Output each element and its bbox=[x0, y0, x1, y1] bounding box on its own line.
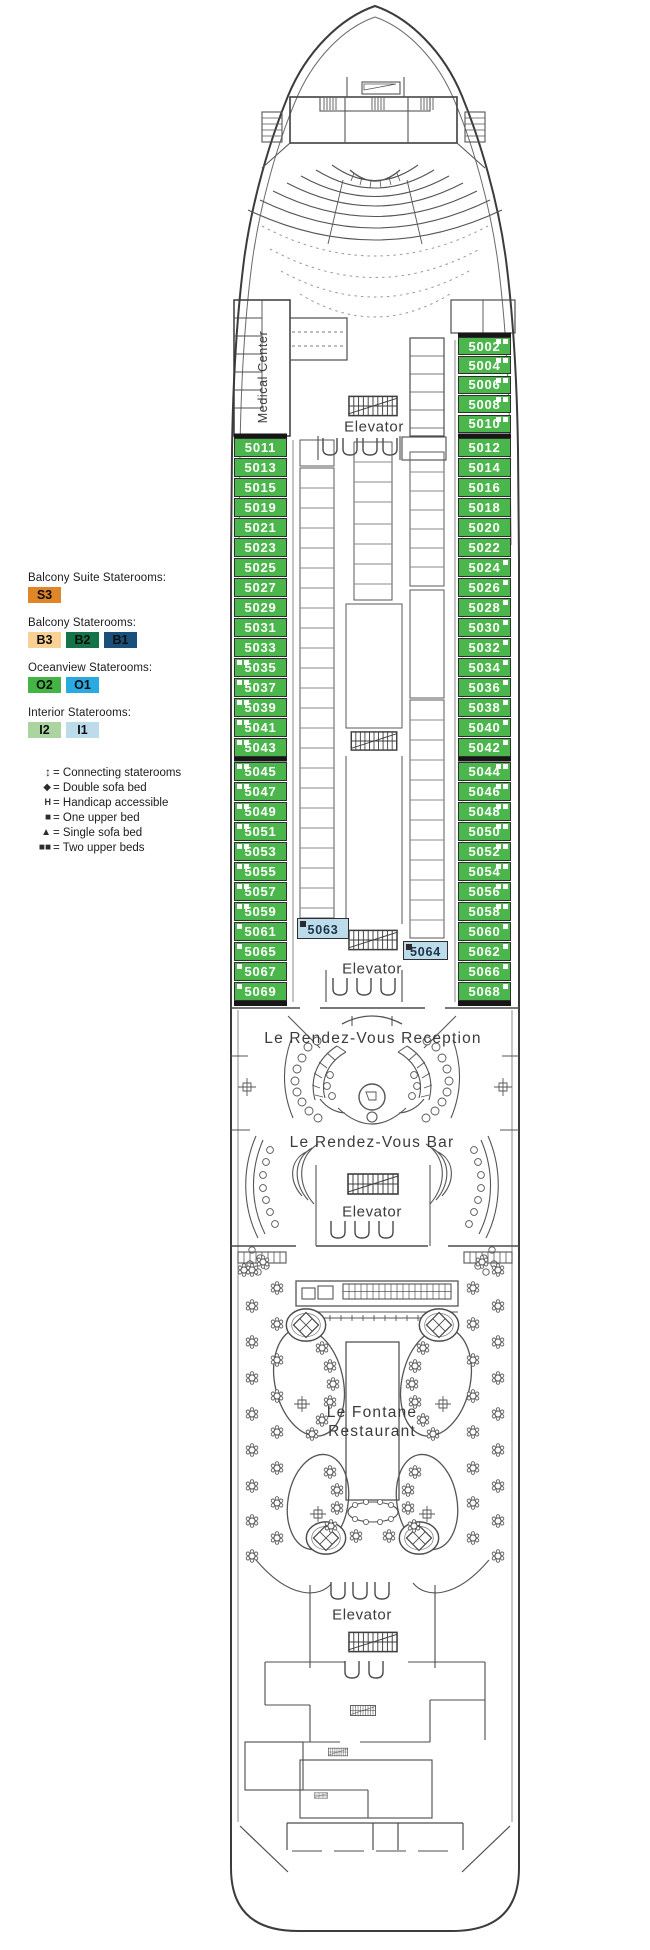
dining-table-icon bbox=[316, 1342, 328, 1355]
theater-area bbox=[248, 77, 502, 317]
dining-table-icon bbox=[246, 1336, 258, 1349]
upper-bed-icon bbox=[496, 784, 501, 789]
dining-table-icon bbox=[246, 1550, 258, 1563]
restaurant-label-line1: Le Fontane bbox=[327, 1404, 417, 1422]
dining-table-icon bbox=[492, 1515, 504, 1528]
legend-swatch-S3: S3 bbox=[28, 587, 61, 603]
single-sofa-bed-icon: ▲ bbox=[28, 825, 53, 840]
dining-table-icon bbox=[383, 1530, 395, 1543]
stateroom-5068[interactable]: 5068 bbox=[458, 982, 511, 1001]
restaurant-label-line2: Restaurant bbox=[328, 1423, 416, 1441]
dining-table-icon bbox=[246, 1480, 258, 1493]
stateroom-5045[interactable]: 5045 bbox=[234, 762, 287, 781]
stateroom-5016[interactable]: 5016 bbox=[458, 478, 511, 497]
legend-symbol-label: = Single sofa bed bbox=[53, 827, 142, 839]
upper-bed-icon bbox=[244, 844, 249, 849]
upper-bed-icon bbox=[237, 964, 242, 969]
upper-bed-icon bbox=[503, 964, 508, 969]
upper-bed-icon bbox=[503, 864, 508, 869]
upper-bed-icon bbox=[503, 924, 508, 929]
stateroom-5056[interactable]: 5056 bbox=[458, 882, 511, 901]
upper-bed-icon bbox=[237, 784, 242, 789]
legend: Balcony Suite Staterooms:S3Balcony State… bbox=[28, 572, 228, 855]
reception-area bbox=[231, 1008, 519, 1130]
dining-table-icon bbox=[271, 1390, 283, 1403]
legend-symbol-row-2: H= Handicap accessible bbox=[28, 795, 228, 810]
stateroom-5034[interactable]: 5034 bbox=[458, 658, 511, 677]
medical-center-label: Medical Center bbox=[256, 331, 270, 423]
stateroom-5035[interactable]: 5035 bbox=[234, 658, 287, 677]
upper-bed-icon bbox=[244, 764, 249, 769]
upper-bed-icon bbox=[406, 944, 412, 950]
dining-table-icon bbox=[467, 1354, 479, 1367]
dining-table-icon bbox=[271, 1497, 283, 1510]
stateroom-5002[interactable]: 5002 bbox=[458, 337, 511, 355]
legend-swatch-B3: B3 bbox=[28, 632, 61, 648]
legend-category-label-oceanview: Oceanview Staterooms: bbox=[28, 662, 228, 674]
dining-table-icon bbox=[271, 1462, 283, 1475]
dining-table-icon bbox=[246, 1408, 258, 1421]
legend-swatch-I1: I1 bbox=[66, 722, 99, 738]
elevator-label-mid: Elevator bbox=[342, 961, 402, 978]
dining-table-icon bbox=[467, 1390, 479, 1403]
stateroom-5024[interactable]: 5024 bbox=[458, 558, 511, 577]
stateroom-5029[interactable]: 5029 bbox=[234, 598, 287, 617]
legend-swatch-O1: O1 bbox=[66, 677, 99, 693]
upper-bed-icon bbox=[237, 824, 242, 829]
dining-table-icon bbox=[271, 1426, 283, 1439]
upper-bed-icon bbox=[237, 700, 242, 705]
dining-table-icon bbox=[246, 1300, 258, 1313]
dining-table-icon bbox=[324, 1466, 336, 1479]
upper-bed-icon bbox=[237, 804, 242, 809]
stateroom-5051[interactable]: 5051 bbox=[234, 822, 287, 841]
upper-bed-icon bbox=[237, 764, 242, 769]
dining-table-icon bbox=[409, 1360, 421, 1373]
upper-bed-icon bbox=[237, 944, 242, 949]
upper-bed-icon bbox=[244, 680, 249, 685]
upper-bed-icon bbox=[244, 864, 249, 869]
upper-bed-icon bbox=[503, 339, 508, 344]
dining-table-icon bbox=[406, 1378, 418, 1391]
upper-bed-icon bbox=[237, 660, 242, 665]
dining-table-icon bbox=[417, 1342, 429, 1355]
stateroom-5014[interactable]: 5014 bbox=[458, 458, 511, 477]
upper-bed-icon bbox=[244, 700, 249, 705]
stateroom-5004[interactable]: 5004 bbox=[458, 356, 511, 374]
dining-table-icon bbox=[331, 1502, 343, 1515]
stateroom-5066[interactable]: 5066 bbox=[458, 962, 511, 981]
dining-table-icon bbox=[402, 1484, 414, 1497]
upper-bed-icon bbox=[244, 720, 249, 725]
stateroom-5026[interactable]: 5026 bbox=[458, 578, 511, 597]
dining-table-icon bbox=[467, 1497, 479, 1510]
dining-table-icon bbox=[409, 1466, 421, 1479]
stateroom-5006[interactable]: 5006 bbox=[458, 376, 511, 394]
dining-table-icon bbox=[492, 1264, 504, 1277]
handicap-accessible-icon: H bbox=[28, 795, 53, 810]
dining-table-icon bbox=[467, 1282, 479, 1295]
stateroom-5015[interactable]: 5015 bbox=[234, 478, 287, 497]
stateroom-5019[interactable]: 5019 bbox=[234, 498, 287, 517]
dining-table-icon bbox=[492, 1480, 504, 1493]
stateroom-5012[interactable]: 5012 bbox=[458, 438, 511, 457]
stateroom-5046[interactable]: 5046 bbox=[458, 782, 511, 801]
upper-bed-icon bbox=[244, 740, 249, 745]
upper-bed-icon bbox=[503, 804, 508, 809]
dining-table-icon bbox=[271, 1318, 283, 1331]
legend-symbol-label: = One upper bed bbox=[53, 812, 140, 824]
stateroom-5047[interactable]: 5047 bbox=[234, 782, 287, 801]
stateroom-5040[interactable]: 5040 bbox=[458, 718, 511, 737]
stateroom-5063[interactable]: 5063 bbox=[297, 918, 349, 939]
upper-bed-icon bbox=[503, 944, 508, 949]
stateroom-5023[interactable]: 5023 bbox=[234, 538, 287, 557]
stateroom-5042[interactable]: 5042 bbox=[458, 738, 511, 757]
dining-table-icon bbox=[467, 1462, 479, 1475]
upper-bed-icon bbox=[237, 680, 242, 685]
upper-bed-icon bbox=[496, 339, 501, 344]
upper-bed-icon bbox=[503, 600, 508, 605]
legend-swatch-B2: B2 bbox=[66, 632, 99, 648]
stateroom-5057[interactable]: 5057 bbox=[234, 882, 287, 901]
upper-bed-icon bbox=[503, 660, 508, 665]
dining-table-icon bbox=[467, 1532, 479, 1545]
bar-label: Le Rendez-Vous Bar bbox=[290, 1134, 455, 1152]
upper-bed-icon bbox=[496, 884, 501, 889]
upper-bed-icon bbox=[503, 580, 508, 585]
upper-bed-icon bbox=[237, 844, 242, 849]
upper-bed-icon bbox=[503, 740, 508, 745]
upper-bed-icon bbox=[503, 417, 508, 422]
legend-symbol-label: = Connecting staterooms bbox=[53, 767, 181, 779]
stateroom-5037[interactable]: 5037 bbox=[234, 678, 287, 697]
legend-symbols: ↕= Connecting staterooms◆= Double sofa b… bbox=[28, 765, 228, 855]
upper-bed-icon bbox=[237, 924, 242, 929]
upper-bed-icon bbox=[237, 984, 242, 989]
upper-bed-icon bbox=[496, 417, 501, 422]
stateroom-5058[interactable]: 5058 bbox=[458, 902, 511, 921]
stateroom-5032[interactable]: 5032 bbox=[458, 638, 511, 657]
upper-bed-icon bbox=[503, 784, 508, 789]
upper-bed-icon bbox=[237, 720, 242, 725]
upper-bed-icon bbox=[496, 864, 501, 869]
upper-bed-icon bbox=[503, 397, 508, 402]
upper-bed-icon bbox=[237, 904, 242, 909]
stateroom-5011[interactable]: 5011 bbox=[234, 438, 287, 457]
stateroom-5033[interactable]: 5033 bbox=[234, 638, 287, 657]
upper-bed-icon bbox=[503, 904, 508, 909]
dining-table-icon bbox=[331, 1484, 343, 1497]
upper-bed-icon bbox=[503, 620, 508, 625]
dining-table-icon bbox=[246, 1444, 258, 1457]
upper-bed-icon bbox=[503, 680, 508, 685]
upper-bed-icon bbox=[503, 824, 508, 829]
stateroom-5059[interactable]: 5059 bbox=[234, 902, 287, 921]
stateroom-5044[interactable]: 5044 bbox=[458, 762, 511, 781]
upper-bed-icon bbox=[503, 378, 508, 383]
upper-bed-icon bbox=[496, 397, 501, 402]
upper-bed-icon bbox=[496, 804, 501, 809]
upper-bed-icon bbox=[244, 784, 249, 789]
double-sofa-bed-icon: ◆ bbox=[28, 780, 53, 795]
legend-symbol-row-4: ▲= Single sofa bed bbox=[28, 825, 228, 840]
legend-swatch-I2: I2 bbox=[28, 722, 61, 738]
upper-bed-icon bbox=[503, 844, 508, 849]
upper-bed-icon bbox=[496, 904, 501, 909]
upper-bed-icon bbox=[496, 764, 501, 769]
upper-bed-icon bbox=[496, 358, 501, 363]
legend-categories: Balcony Suite Staterooms:S3Balcony State… bbox=[28, 572, 228, 738]
stateroom-5013[interactable]: 5013 bbox=[234, 458, 287, 477]
elevator-label-aft: Elevator bbox=[332, 1607, 392, 1624]
dining-table-icon bbox=[492, 1408, 504, 1421]
upper-bed-icon bbox=[300, 921, 306, 927]
legend-symbol-label: = Two upper beds bbox=[53, 842, 145, 854]
elevator-label-lobby: Elevator bbox=[342, 1204, 402, 1221]
legend-swatch-O2: O2 bbox=[28, 677, 61, 693]
dining-table-icon bbox=[492, 1372, 504, 1385]
legend-symbol-row-1: ◆= Double sofa bed bbox=[28, 780, 228, 795]
upper-bed-icon bbox=[496, 378, 501, 383]
deck-plan-drawing bbox=[0, 0, 650, 1950]
stateroom-5053[interactable]: 5053 bbox=[234, 842, 287, 861]
stern-platform bbox=[240, 1823, 510, 1872]
stateroom-5021[interactable]: 5021 bbox=[234, 518, 287, 537]
stateroom-5052[interactable]: 5052 bbox=[458, 842, 511, 861]
reception-label: Le Rendez-Vous Reception bbox=[264, 1030, 482, 1048]
dining-table-icon bbox=[492, 1550, 504, 1563]
stateroom-5027[interactable]: 5027 bbox=[234, 578, 287, 597]
stateroom-5069[interactable]: 5069 bbox=[234, 982, 287, 1001]
stateroom-5010[interactable]: 5010 bbox=[458, 415, 511, 433]
legend-swatch-B1: B1 bbox=[104, 632, 137, 648]
dining-table-icon bbox=[467, 1426, 479, 1439]
dining-table-icon bbox=[246, 1372, 258, 1385]
elevator-label-forward: Elevator bbox=[344, 419, 404, 436]
upper-bed-icon bbox=[503, 984, 508, 989]
stateroom-5055[interactable]: 5055 bbox=[234, 862, 287, 881]
connecting-staterooms-icon: ↕ bbox=[28, 765, 53, 780]
stateroom-5043[interactable]: 5043 bbox=[234, 738, 287, 757]
upper-bed-icon bbox=[503, 700, 508, 705]
legend-symbol-label: = Handicap accessible bbox=[53, 797, 168, 809]
stateroom-5065[interactable]: 5065 bbox=[234, 942, 287, 961]
upper-bed-icon bbox=[503, 358, 508, 363]
dining-table-icon bbox=[417, 1414, 429, 1427]
dining-table-icon bbox=[492, 1336, 504, 1349]
stateroom-5064[interactable]: 5064 bbox=[403, 941, 448, 961]
dining-table-icon bbox=[492, 1444, 504, 1457]
dining-table-icon bbox=[402, 1502, 414, 1515]
upper-bed-icon bbox=[244, 904, 249, 909]
legend-symbol-label: = Double sofa bed bbox=[53, 782, 147, 794]
two-upper-beds-icon: ■■ bbox=[28, 840, 53, 855]
legend-symbol-row-3: ■= One upper bed bbox=[28, 810, 228, 825]
upper-bed-icon bbox=[237, 884, 242, 889]
upper-bed-icon bbox=[244, 884, 249, 889]
stateroom-5049[interactable]: 5049 bbox=[234, 802, 287, 821]
stateroom-5050[interactable]: 5050 bbox=[458, 822, 511, 841]
one-upper-bed-icon: ■ bbox=[28, 810, 53, 825]
upper-bed-icon bbox=[237, 740, 242, 745]
stateroom-5067[interactable]: 5067 bbox=[234, 962, 287, 981]
legend-symbol-row-0: ↕= Connecting staterooms bbox=[28, 765, 228, 780]
stateroom-5054[interactable]: 5054 bbox=[458, 862, 511, 881]
upper-bed-icon bbox=[496, 844, 501, 849]
upper-bed-icon bbox=[244, 660, 249, 665]
upper-bed-icon bbox=[496, 824, 501, 829]
legend-swatch-row-balcony-suite: S3 bbox=[28, 587, 228, 603]
stateroom-5041[interactable]: 5041 bbox=[234, 718, 287, 737]
stateroom-5031[interactable]: 5031 bbox=[234, 618, 287, 637]
upper-bed-icon bbox=[503, 640, 508, 645]
upper-bed-icon bbox=[244, 824, 249, 829]
dining-table-icon bbox=[271, 1354, 283, 1367]
stateroom-5025[interactable]: 5025 bbox=[234, 558, 287, 577]
dining-table-icon bbox=[257, 1256, 269, 1269]
stateroom-5039[interactable]: 5039 bbox=[234, 698, 287, 717]
legend-category-label-balcony: Balcony Staterooms: bbox=[28, 617, 228, 629]
dining-table-icon bbox=[238, 1264, 250, 1277]
aft-service-area bbox=[245, 1662, 485, 1818]
upper-bed-icon bbox=[503, 764, 508, 769]
upper-bed-icon bbox=[244, 804, 249, 809]
dining-table-icon bbox=[324, 1360, 336, 1373]
stateroom-5048[interactable]: 5048 bbox=[458, 802, 511, 821]
dining-table-icon bbox=[492, 1300, 504, 1313]
upper-bed-icon bbox=[503, 720, 508, 725]
upper-bed-icon bbox=[503, 560, 508, 565]
deck-plan-page: { "labels": { "medical_center": "Medical… bbox=[0, 0, 650, 1950]
legend-swatch-row-balcony: B3B2B1 bbox=[28, 632, 228, 648]
stateroom-5036[interactable]: 5036 bbox=[458, 678, 511, 697]
stateroom-5062[interactable]: 5062 bbox=[458, 942, 511, 961]
legend-swatch-row-interior: I2I1 bbox=[28, 722, 228, 738]
legend-category-label-balcony-suite: Balcony Suite Staterooms: bbox=[28, 572, 228, 584]
dining-table-icon bbox=[327, 1378, 339, 1391]
dining-table-icon bbox=[467, 1318, 479, 1331]
stateroom-5020[interactable]: 5020 bbox=[458, 518, 511, 537]
stateroom-5030[interactable]: 5030 bbox=[458, 618, 511, 637]
upper-bed-icon bbox=[503, 884, 508, 889]
stateroom-5061[interactable]: 5061 bbox=[234, 922, 287, 941]
stateroom-5028[interactable]: 5028 bbox=[458, 598, 511, 617]
dining-table-icon bbox=[271, 1532, 283, 1545]
dining-table-icon bbox=[350, 1530, 362, 1543]
legend-swatch-row-oceanview: O2O1 bbox=[28, 677, 228, 693]
stateroom-5018[interactable]: 5018 bbox=[458, 498, 511, 517]
stateroom-5060[interactable]: 5060 bbox=[458, 922, 511, 941]
legend-category-label-interior: Interior Staterooms: bbox=[28, 707, 228, 719]
dining-table-icon bbox=[476, 1256, 488, 1269]
stateroom-5008[interactable]: 5008 bbox=[458, 395, 511, 413]
aft-elevator-lobby bbox=[310, 1582, 435, 1678]
legend-symbol-row-5: ■■= Two upper beds bbox=[28, 840, 228, 855]
dining-table-icon bbox=[271, 1282, 283, 1295]
dining-table-icon bbox=[246, 1515, 258, 1528]
upper-bed-icon bbox=[237, 864, 242, 869]
stateroom-5038[interactable]: 5038 bbox=[458, 698, 511, 717]
stateroom-5022[interactable]: 5022 bbox=[458, 538, 511, 557]
